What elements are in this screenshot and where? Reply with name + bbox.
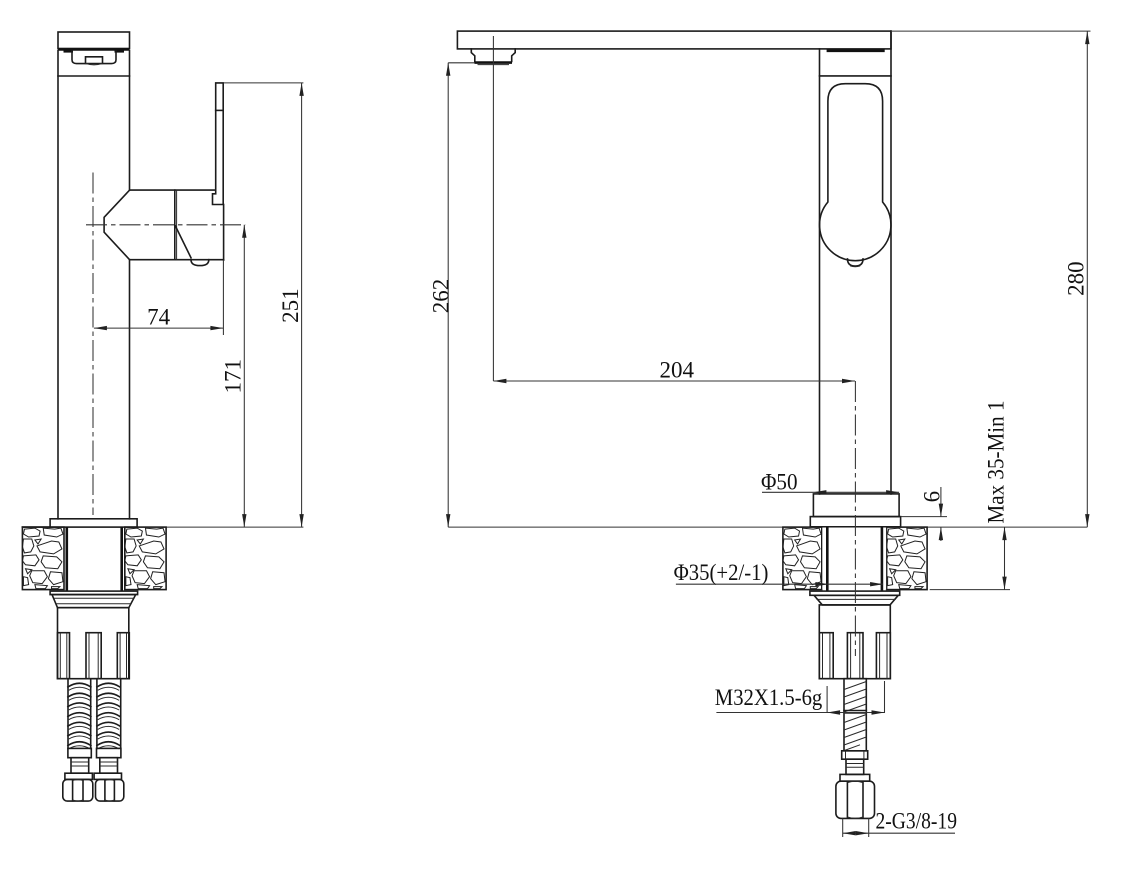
svg-text:2-G3/8-19: 2-G3/8-19 [876, 809, 958, 834]
svg-text:171: 171 [221, 359, 246, 394]
svg-text:280: 280 [1064, 261, 1089, 296]
svg-text:M32X1.5-6g: M32X1.5-6g [715, 685, 823, 710]
svg-text:Max 35-Min 1: Max 35-Min 1 [984, 401, 1009, 524]
svg-text:6: 6 [919, 491, 944, 503]
svg-text:262: 262 [429, 279, 454, 314]
svg-text:251: 251 [278, 288, 303, 323]
svg-text:Φ50: Φ50 [761, 469, 798, 494]
svg-text:74: 74 [147, 305, 171, 330]
svg-text:Φ35(+2/-1): Φ35(+2/-1) [674, 560, 769, 585]
svg-text:204: 204 [660, 358, 695, 383]
